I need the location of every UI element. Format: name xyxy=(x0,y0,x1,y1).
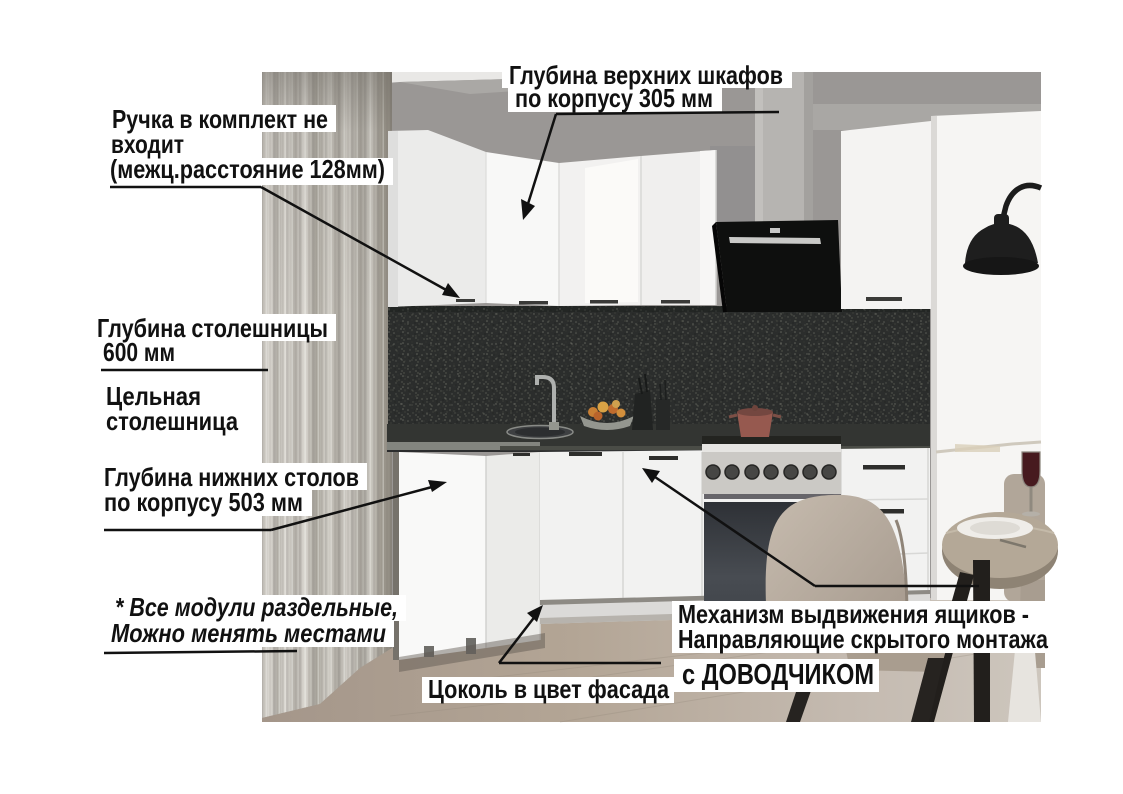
svg-text:с ДОВОДЧИКОМ: с ДОВОДЧИКОМ xyxy=(682,659,874,691)
svg-text:по корпусу 503 мм: по корпусу 503 мм xyxy=(104,487,303,517)
svg-text:(межц.расстояние 128мм): (межц.расстояние 128мм) xyxy=(110,154,385,184)
svg-text:столешница: столешница xyxy=(106,406,238,436)
svg-text:по корпусу 305 мм: по корпусу 305 мм xyxy=(515,83,713,113)
svg-text:Цоколь в цвет фасада: Цоколь в цвет фасада xyxy=(428,674,669,704)
svg-text:600 мм: 600 мм xyxy=(103,337,175,367)
svg-text:Направляющие скрытого монтажа: Направляющие скрытого монтажа xyxy=(678,624,1048,654)
svg-text:Можно менять местами: Можно менять местами xyxy=(111,618,386,648)
